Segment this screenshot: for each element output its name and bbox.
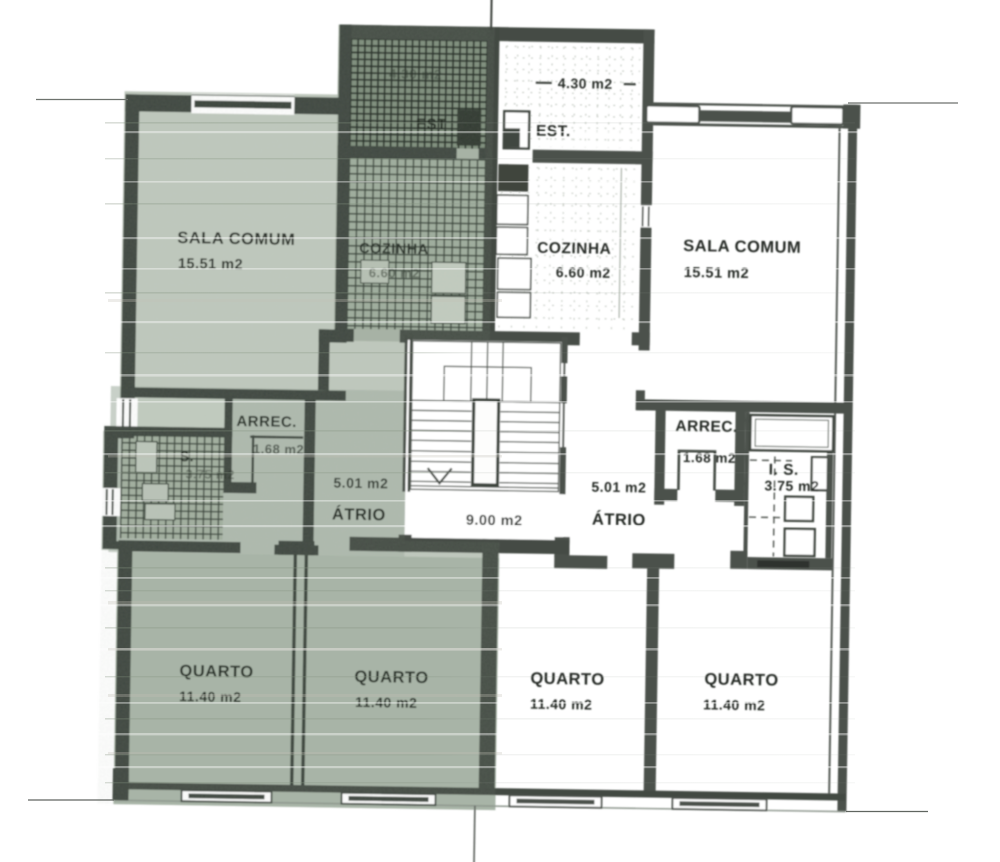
svg-text:3.75 m2: 3.75 m2 xyxy=(764,477,819,494)
svg-text:1.68 m2: 1.68 m2 xyxy=(683,450,736,466)
svg-text:ARREC.: ARREC. xyxy=(675,418,738,436)
svg-text:QUARTO: QUARTO xyxy=(704,670,778,689)
svg-text:11.40 m2: 11.40 m2 xyxy=(530,696,593,713)
svg-text:6.60 m2: 6.60 m2 xyxy=(556,264,611,281)
svg-text:11.40 m2: 11.40 m2 xyxy=(703,696,766,713)
svg-text:5.01 m2: 5.01 m2 xyxy=(591,479,646,496)
svg-text:15.51 m2: 15.51 m2 xyxy=(684,265,750,282)
svg-text:QUARTO: QUARTO xyxy=(530,670,604,689)
svg-text:SALA COMUM: SALA COMUM xyxy=(683,237,801,257)
svg-text:4.30 m2: 4.30 m2 xyxy=(558,75,613,92)
svg-text:I. S.: I. S. xyxy=(769,461,799,478)
svg-text:COZINHA: COZINHA xyxy=(537,240,611,258)
